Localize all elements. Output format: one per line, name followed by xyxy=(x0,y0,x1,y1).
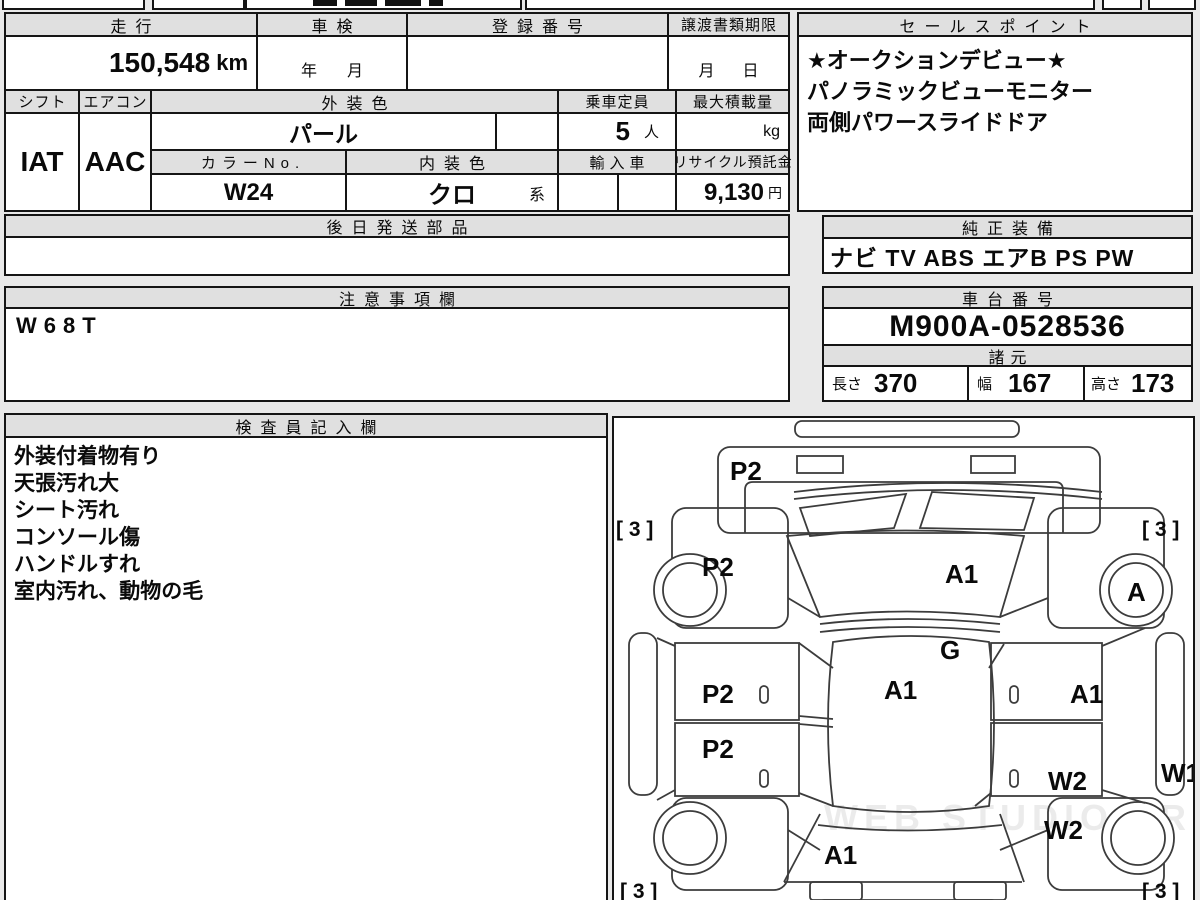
roof-shape xyxy=(828,636,994,812)
inspection-value-cell: 年 月 xyxy=(256,35,408,91)
notes-value: W68T xyxy=(16,313,103,339)
spec-length-cell: 長さ 370 xyxy=(822,365,969,402)
windshield-shape xyxy=(787,531,1024,618)
import-car-header: 輸入車 xyxy=(557,149,677,175)
sales-point-line: ★オークションデビュー★ xyxy=(807,45,1191,76)
specs-header: 諸元 xyxy=(822,344,1193,367)
sales-point-line: 両側パワースライドドア xyxy=(807,107,1191,138)
top-cutoff-cell-4 xyxy=(525,0,1095,10)
registration-header: 登録番号 xyxy=(406,12,669,37)
car-damage-diagram: WEB STUDIO PRO xyxy=(614,418,1193,900)
door-rear-left-shape xyxy=(675,723,799,796)
cowl-arc-lower xyxy=(794,490,1102,499)
shift-value: IAT xyxy=(20,146,63,178)
spec-length-label: 長さ xyxy=(832,373,862,394)
max-load-unit: kg xyxy=(763,123,780,141)
mileage-value-cell: 150,548 km xyxy=(4,35,258,91)
roof-front-band-1 xyxy=(820,619,1000,624)
inspection-month-label: 月 xyxy=(347,57,363,81)
damage-code-fender-rear-right: W2 xyxy=(1044,815,1083,845)
exterior-color-extra-cell xyxy=(495,112,559,151)
max-load-value-cell: kg xyxy=(675,112,790,151)
color-no-header: カラーNo. xyxy=(150,149,347,175)
inspector-line: ハンドルすれ xyxy=(14,551,594,578)
door-handle-rear-left xyxy=(760,770,768,787)
equipment-value-cell: ナビ TV ABS エアB PS PW xyxy=(822,237,1193,274)
damage-diagram-box: WEB STUDIO PRO xyxy=(612,416,1195,900)
mileage-value: 150,548 xyxy=(109,47,210,79)
mileage-unit: km xyxy=(216,50,248,76)
top-cutoff-cell-1 xyxy=(2,0,145,10)
spec-length-value: 370 xyxy=(874,368,917,399)
rear-bumper-notch-right xyxy=(954,882,1006,900)
exterior-color-header: 外装色 xyxy=(150,89,559,114)
transfer-day-label: 日 xyxy=(743,57,759,81)
sales-points-header: セールスポイント xyxy=(797,12,1193,37)
cutoff-text-fragment xyxy=(313,0,337,6)
recycle-deposit-unit: 円 xyxy=(768,183,782,203)
sill-left-strip xyxy=(629,633,657,795)
corner-marker-front-left: [ 3 ] xyxy=(616,518,653,541)
aircon-header: エアコン xyxy=(78,89,152,114)
sales-point-line: パノラミックビューモニター xyxy=(807,76,1191,107)
transfer-month-label: 月 xyxy=(698,57,714,81)
auction-sheet: 走行 車検 登録番号 譲渡書類期限 150,548 km 年 月 月 日 シフト… xyxy=(0,0,1200,900)
transfer-deadline-header: 譲渡書類期限 xyxy=(667,12,790,37)
damage-code-rear-gate: A1 xyxy=(824,840,857,870)
aircon-value: AAC xyxy=(85,146,146,178)
damage-code-door-front-right: A1 xyxy=(1070,679,1103,709)
recycle-deposit-value: 9,130 xyxy=(704,179,764,207)
spec-width-label: 幅 xyxy=(977,373,992,394)
capacity-value: 5 xyxy=(616,116,630,147)
door-front-left-shape xyxy=(675,643,799,720)
damage-code-sill-right: W1 xyxy=(1161,758,1193,788)
interior-color-suffix: 系 xyxy=(529,181,545,205)
door-handle-rear-right xyxy=(1010,770,1018,787)
door-handle-front-left xyxy=(760,686,768,703)
wiper-right xyxy=(920,492,1034,530)
interior-color-header: 内装色 xyxy=(345,149,559,175)
registration-value-cell xyxy=(406,35,669,91)
damage-code-door-rear-left: P2 xyxy=(702,734,734,764)
top-cutoff-cell-3 xyxy=(245,0,522,10)
capacity-header: 乗車定員 xyxy=(557,89,677,114)
color-no-value-cell: W24 xyxy=(150,173,347,212)
front-light-left xyxy=(797,456,843,473)
chassis-value-cell: M900A-0528536 xyxy=(822,307,1193,346)
mileage-header: 走行 xyxy=(4,12,258,37)
front-bumper-inner-line xyxy=(745,482,1063,533)
roof-rail-strip xyxy=(795,421,1019,437)
capacity-value-cell: 5 人 xyxy=(557,112,677,151)
interior-color-value-cell: クロ 系 xyxy=(345,173,559,212)
sales-points-body: ★オークションデビュー★ パノラミックビューモニター 両側パワースライドドア xyxy=(797,35,1193,212)
inspector-lines: 外装付着物有り 天張汚れ大 シート汚れ コンソール傷 ハンドルすれ 室内汚れ、動… xyxy=(14,443,594,605)
inspector-line: 室内汚れ、動物の毛 xyxy=(14,578,594,605)
import-car-value-cell-2 xyxy=(617,173,677,212)
wheel-rear-left xyxy=(654,802,726,874)
spec-width-cell: 幅 167 xyxy=(967,365,1085,402)
aircon-value-cell: AAC xyxy=(78,112,152,212)
corner-marker-rear-left: [ 3 ] xyxy=(620,880,657,900)
door-handle-front-right xyxy=(1010,686,1018,703)
max-load-header: 最大積載量 xyxy=(675,89,790,114)
cutoff-text-fragment xyxy=(385,0,421,6)
chassis-value: M900A-0528536 xyxy=(889,310,1126,344)
corner-marker-rear-right: [ 3 ] xyxy=(1142,880,1179,900)
transfer-deadline-value-cell: 月 日 xyxy=(667,35,790,91)
later-parts-value-cell xyxy=(4,236,790,276)
shift-value-cell: IAT xyxy=(4,112,80,212)
inspection-header: 車検 xyxy=(256,12,408,37)
notes-value-cell: W68T xyxy=(4,307,790,402)
inspector-line: 天張汚れ大 xyxy=(14,470,594,497)
inspector-line: コンソール傷 xyxy=(14,524,594,551)
equipment-value: ナビ TV ABS エアB PS PW xyxy=(830,239,1134,273)
damage-code-wheel-front-right: A xyxy=(1127,577,1146,607)
exterior-color-value-cell: パール xyxy=(150,112,497,151)
corner-marker-front-right: [ 3 ] xyxy=(1142,518,1179,541)
inspector-header: 検査員記入欄 xyxy=(4,413,608,438)
exterior-color-value: パール xyxy=(289,115,358,149)
shift-header: シフト xyxy=(4,89,80,114)
color-no-value: W24 xyxy=(224,179,273,207)
interior-color-value: クロ xyxy=(428,175,476,210)
inspector-line: シート汚れ xyxy=(14,497,594,524)
damage-code-front-bumper: P2 xyxy=(730,456,762,486)
equipment-header: 純正装備 xyxy=(822,215,1193,239)
spec-height-cell: 高さ 173 xyxy=(1083,365,1193,402)
spec-height-value: 173 xyxy=(1131,368,1174,399)
front-light-right xyxy=(971,456,1015,473)
roof-front-band-2 xyxy=(820,627,1000,632)
damage-code-cowl: G xyxy=(940,635,960,665)
rear-bumper-notch-left xyxy=(810,882,862,900)
chassis-header: 車台番号 xyxy=(822,286,1193,309)
rear-window-left-edge xyxy=(784,814,820,882)
recycle-deposit-header: リサイクル預託金 xyxy=(675,149,790,175)
recycle-deposit-value-cell: 9,130 円 xyxy=(675,173,790,212)
top-cutoff-cell-2 xyxy=(152,0,245,10)
top-cutoff-cell-5 xyxy=(1102,0,1142,10)
notes-header: 注意事項欄 xyxy=(4,286,790,309)
cutoff-text-fragment xyxy=(429,0,443,6)
later-parts-header: 後日発送部品 xyxy=(4,214,790,238)
cutoff-text-fragment xyxy=(345,0,377,6)
damage-code-windshield: A1 xyxy=(945,559,978,589)
spec-width-value: 167 xyxy=(1008,368,1051,399)
import-car-value-cell-1 xyxy=(557,173,619,212)
capacity-unit: 人 xyxy=(644,121,659,142)
damage-code-roof: A1 xyxy=(884,675,917,705)
damage-code-door-front-left: P2 xyxy=(702,679,734,709)
wheel-rear-right xyxy=(1102,802,1174,874)
top-cutoff-cell-6 xyxy=(1148,0,1196,10)
spec-height-label: 高さ xyxy=(1091,373,1121,394)
damage-code-fender-front-left: P2 xyxy=(702,552,734,582)
damage-code-door-rear-right: W2 xyxy=(1048,766,1087,796)
inspector-line: 外装付着物有り xyxy=(14,443,594,470)
inspection-year-label: 年 xyxy=(301,57,317,81)
